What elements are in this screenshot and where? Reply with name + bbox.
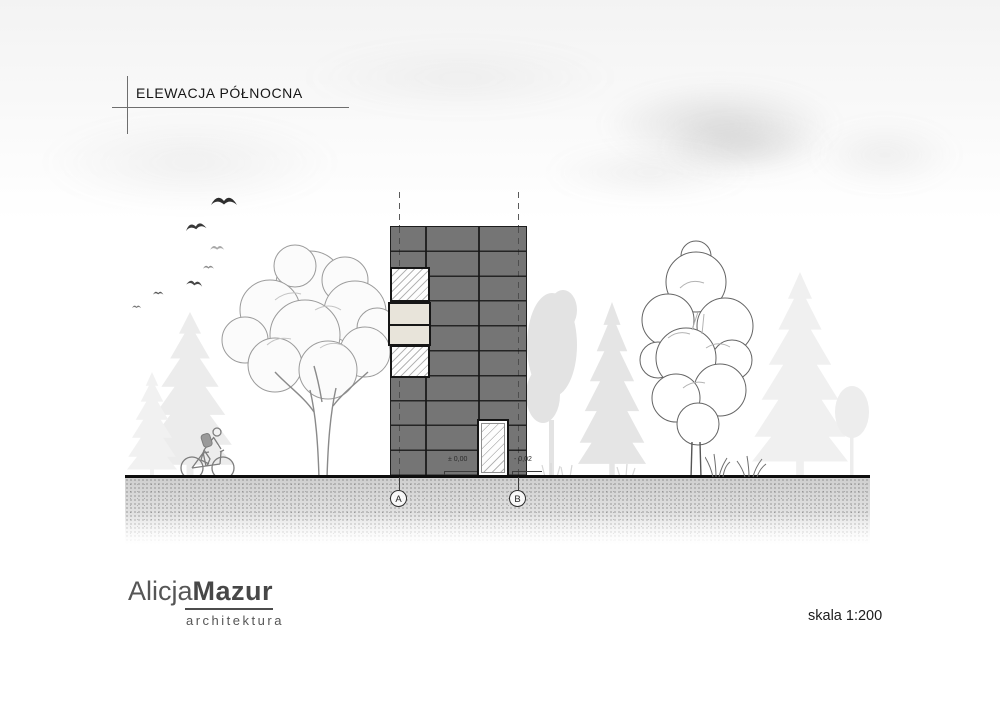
level-marker-minus: - 0,02 [514, 456, 532, 463]
foreground-tree-right [628, 238, 763, 480]
ground-hatch [125, 478, 870, 544]
level-line [512, 471, 542, 472]
logo-subtitle: architektura [186, 614, 284, 627]
axis-leader-b [518, 477, 519, 490]
infill-panel [388, 302, 431, 346]
axis-marker-b: B [509, 490, 526, 507]
logo-last-name: Mazur [193, 576, 274, 606]
axis-line-b-overlay [518, 227, 519, 476]
title-vertical-rule [127, 76, 128, 134]
axis-line-b [518, 192, 519, 226]
elevation-drawing-sheet: ELEWACJA PÓŁNOCNA ± 0,00 - 0,02 A B [0, 0, 1000, 706]
level-line [444, 471, 477, 472]
axis-leader-a [399, 477, 400, 490]
drawing-title: ELEWACJA PÓŁNOCNA [136, 85, 303, 101]
logo-rule [185, 608, 273, 610]
entrance-door [477, 419, 509, 477]
door-glazing [481, 423, 505, 473]
window-lower [390, 345, 430, 378]
cyclist [176, 424, 240, 480]
title-underline [112, 107, 349, 108]
deciduous-silhouette [526, 290, 577, 478]
grass-tuft [705, 452, 775, 478]
axis-marker-a: A [390, 490, 407, 507]
level-marker-zero: ± 0,00 [448, 456, 467, 463]
scale-label: skala 1:200 [808, 608, 882, 624]
studio-logo: AlicjaMazur architektura [128, 578, 284, 627]
logo-first-name: Alicja [128, 576, 193, 606]
window-upper [390, 267, 430, 302]
logo-name: AlicjaMazur [128, 578, 284, 605]
axis-line-a [399, 192, 400, 226]
foreground-tree-left [215, 240, 390, 480]
